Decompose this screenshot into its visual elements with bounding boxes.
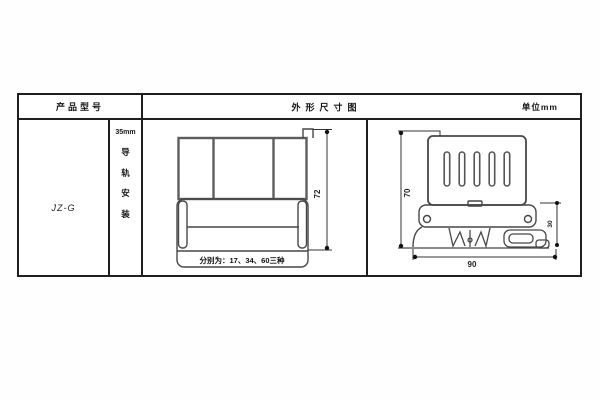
side-vent-slots [444,152,510,186]
side-view-drawing: 70 90 30 [368,120,580,275]
side-base-height-dimension: 30 [547,220,554,228]
front-view-drawing: 72 分别为：17、34、60三种 [143,120,366,275]
front-note-text: 分别为：17、34、60三种 [199,255,285,265]
unit-label: 单位mm [522,101,558,113]
model-value-cell: JZ-G [19,120,110,275]
side-height-dimension: 70 [403,188,412,197]
mounting-size-label: 35mm [115,129,135,136]
front-head-outline [179,138,307,199]
side-width-dimension: 90 [468,260,477,269]
model-header-cell: 产品型号 [19,95,143,120]
mounting-char-1: 导 [121,148,130,157]
side-body-outline [428,136,526,205]
model-value: JZ-G [52,203,76,213]
dimension-title-label: 外形尺寸图 [292,100,362,113]
drawing-sheet: 产品型号 外形尺寸图 单位mm JZ-G 35mm 导 轨 安 装 [0,0,600,400]
side-view-cell: 70 90 30 [368,120,580,275]
mounting-char-3: 安 [121,189,130,198]
mounting-char-2: 轨 [121,169,130,178]
front-height-dimension: 72 [313,189,322,198]
side-dimension-arrows [399,131,559,259]
din-rail-profile [398,228,549,248]
front-view-cell: 72 分别为：17、34、60三种 [143,120,368,275]
mounting-char-4: 装 [121,210,130,219]
spec-table: 产品型号 外形尺寸图 单位mm JZ-G 35mm 导 轨 安 装 [17,93,582,277]
dimension-header-cell: 外形尺寸图 单位mm [143,95,580,120]
model-header-label: 产品型号 [56,100,104,113]
side-base-plate [413,201,536,247]
mounting-cell: 35mm 导 轨 安 装 [110,120,143,275]
